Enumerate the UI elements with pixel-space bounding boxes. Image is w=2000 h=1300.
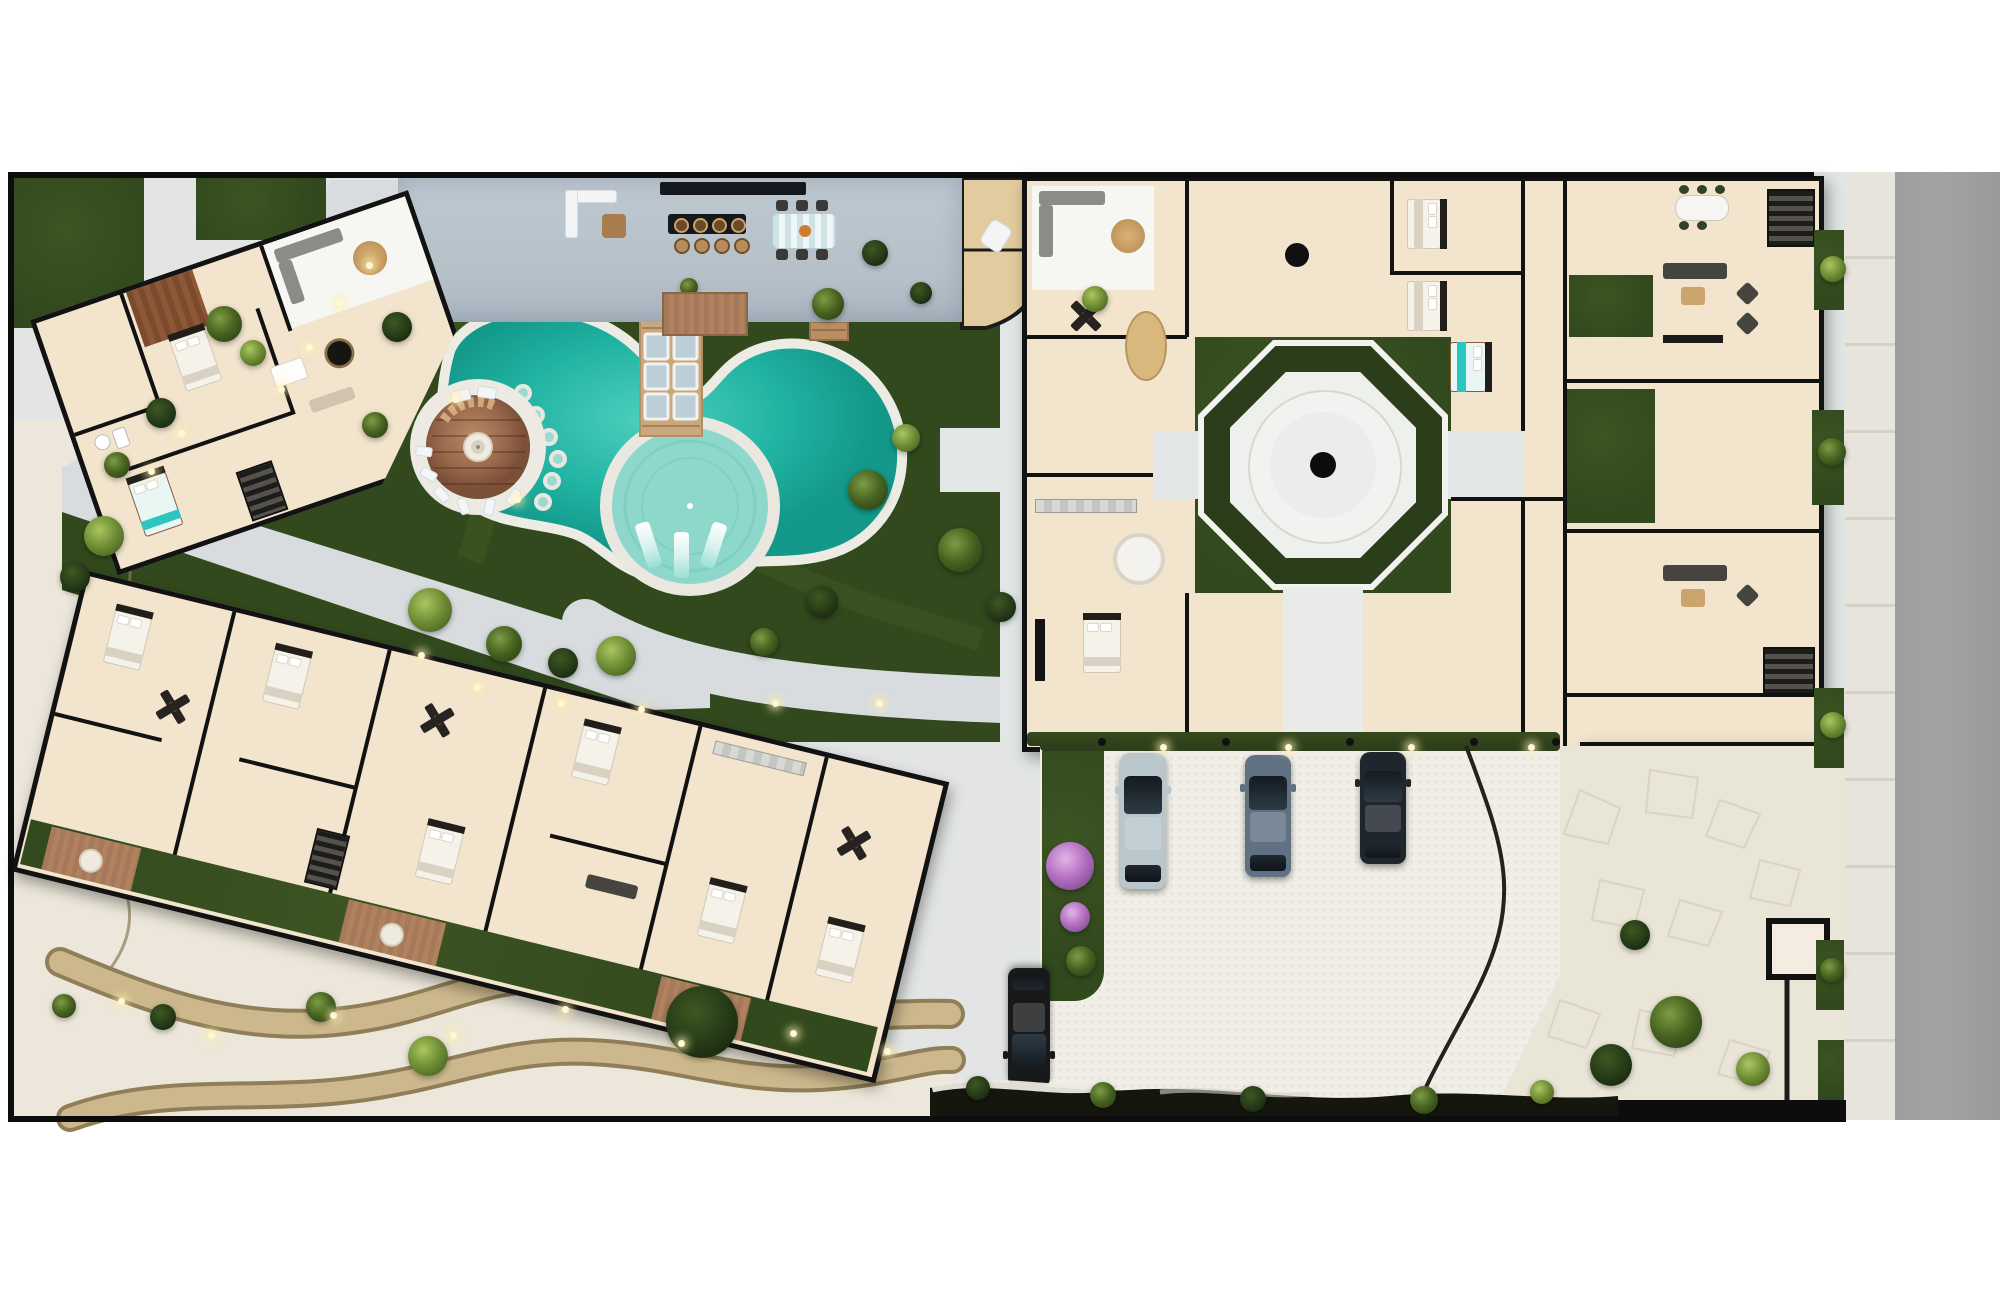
shore-bush bbox=[1410, 1086, 1438, 1114]
tree bbox=[862, 240, 888, 266]
path-light bbox=[306, 344, 313, 351]
tree bbox=[848, 470, 888, 510]
boundary-wall-top bbox=[8, 172, 1814, 178]
tree bbox=[104, 452, 130, 478]
tree bbox=[986, 592, 1016, 622]
palm bbox=[938, 528, 982, 572]
tree bbox=[206, 306, 242, 342]
path-light bbox=[474, 684, 481, 691]
shore-bush bbox=[1090, 1082, 1116, 1108]
se-garden bbox=[1590, 1044, 1632, 1086]
beach-light bbox=[678, 1040, 685, 1047]
tree bbox=[486, 626, 522, 662]
se-garden bbox=[1736, 1052, 1770, 1086]
tree bbox=[60, 562, 90, 592]
path-light bbox=[178, 430, 185, 437]
edge-planter bbox=[1818, 1040, 1844, 1100]
path-light bbox=[452, 396, 459, 403]
palm bbox=[596, 636, 636, 676]
path-light bbox=[876, 700, 883, 707]
path-light bbox=[514, 496, 521, 503]
tree bbox=[362, 412, 388, 438]
beach-light bbox=[208, 1032, 215, 1039]
site-plan-canvas bbox=[0, 0, 2000, 1300]
beach-palm bbox=[408, 1036, 448, 1076]
boundary-wall-west bbox=[8, 172, 14, 1122]
tree bbox=[382, 312, 412, 342]
parking-light bbox=[1285, 744, 1292, 751]
tree bbox=[750, 628, 778, 656]
tree bbox=[146, 398, 176, 428]
beach-light bbox=[884, 1048, 891, 1055]
beach-plant bbox=[52, 994, 76, 1018]
beach-light bbox=[450, 1032, 457, 1039]
tree bbox=[548, 648, 578, 678]
tree bbox=[806, 586, 838, 618]
tree bbox=[240, 340, 266, 366]
tree bbox=[812, 288, 844, 320]
path-light bbox=[418, 652, 425, 659]
se-garden bbox=[1620, 920, 1650, 950]
parking-light bbox=[1160, 744, 1167, 751]
se-garden bbox=[1650, 996, 1702, 1048]
edge-bush bbox=[1820, 256, 1846, 282]
tree bbox=[892, 424, 920, 452]
island-plant bbox=[1066, 946, 1096, 976]
parking-light bbox=[1408, 744, 1415, 751]
shore-bush bbox=[966, 1076, 990, 1100]
palm bbox=[84, 516, 124, 556]
path-light bbox=[558, 700, 565, 707]
beach-light bbox=[790, 1030, 797, 1037]
hardscape-overlay bbox=[0, 0, 2000, 1300]
path-edge-wall bbox=[1415, 746, 1504, 1120]
tree bbox=[1082, 286, 1108, 312]
edge-bush bbox=[1820, 958, 1844, 982]
beach-tree bbox=[666, 986, 738, 1058]
beach-light bbox=[330, 1012, 337, 1019]
path-light bbox=[148, 468, 155, 475]
edge-bush bbox=[1820, 712, 1846, 738]
bougainvillea bbox=[1060, 902, 1090, 932]
bougainvillea bbox=[1046, 842, 1094, 890]
palm bbox=[408, 588, 452, 632]
edge-bush bbox=[1818, 438, 1846, 466]
beach-plant bbox=[150, 1004, 176, 1030]
boundary-wall-south bbox=[8, 1116, 1845, 1122]
beach-light bbox=[118, 998, 125, 1005]
path-light bbox=[772, 700, 779, 707]
shore-bush bbox=[1240, 1086, 1266, 1112]
path-light bbox=[366, 262, 373, 269]
shore-bush bbox=[1530, 1080, 1554, 1104]
path-light bbox=[278, 386, 285, 393]
path-light bbox=[336, 300, 343, 307]
parking-light bbox=[1528, 744, 1535, 751]
path-light bbox=[638, 706, 645, 713]
beach-light bbox=[562, 1006, 569, 1013]
